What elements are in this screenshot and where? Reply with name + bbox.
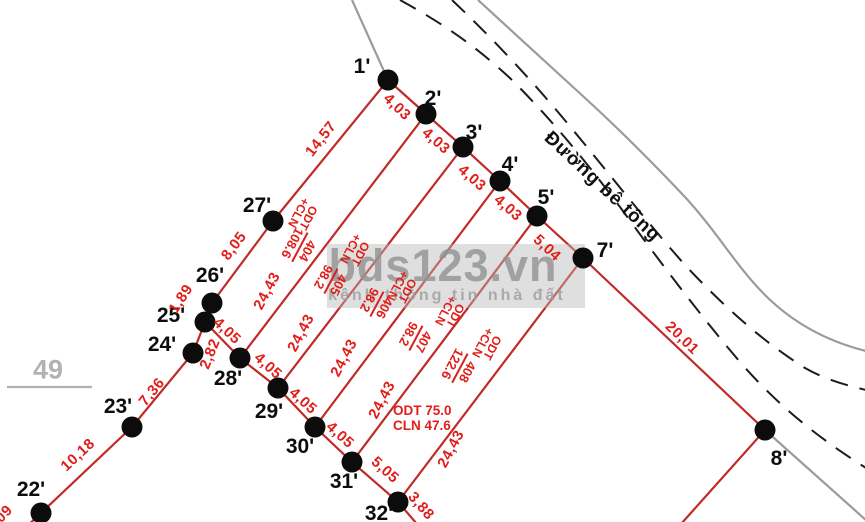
road-center-dashed-lines bbox=[400, 0, 865, 468]
point-label: 31' bbox=[330, 470, 358, 494]
point-label: 24' bbox=[148, 333, 176, 357]
point-label: 3' bbox=[466, 121, 483, 145]
point-label: 5' bbox=[538, 186, 555, 210]
point-label: 4' bbox=[502, 153, 519, 177]
landuse-note-line2: CLN 47.6 bbox=[393, 419, 452, 434]
road-dashed-line-1 bbox=[400, 0, 865, 468]
point-label: 32' bbox=[365, 502, 393, 522]
point-dot-28 bbox=[230, 348, 251, 369]
point-label: 26' bbox=[196, 264, 224, 288]
point-dot-8 bbox=[755, 420, 776, 441]
landuse-note: ODT 75.0 CLN 47.6 bbox=[393, 404, 452, 433]
point-dot-1 bbox=[378, 70, 399, 91]
point-dot-26 bbox=[202, 293, 223, 314]
point-label: 8' bbox=[771, 447, 788, 471]
cadastral-map: bds123.vn kênh thông tin nhà đất 1' 2' 3… bbox=[0, 0, 865, 522]
boundary-1-27 bbox=[273, 80, 388, 221]
point-label: 2' bbox=[425, 87, 442, 111]
point-label: 7' bbox=[597, 239, 614, 263]
adjacent-lot-label: 49 bbox=[33, 355, 63, 386]
point-label: 30' bbox=[286, 435, 314, 459]
divider-2-28 bbox=[240, 114, 426, 358]
road-inner-edge-bottom bbox=[765, 430, 865, 521]
point-dot-7 bbox=[573, 248, 594, 269]
point-label: 27' bbox=[243, 194, 271, 218]
landuse-note-line1: ODT 75.0 bbox=[393, 404, 452, 419]
point-label: 29' bbox=[255, 400, 283, 424]
point-dot-22 bbox=[31, 503, 52, 522]
point-label: 22' bbox=[17, 478, 45, 502]
point-dot-23 bbox=[122, 417, 143, 438]
boundary-8-spur bbox=[681, 430, 765, 522]
point-label: 23' bbox=[104, 395, 132, 419]
point-label: 28' bbox=[214, 367, 242, 391]
point-label: 1' bbox=[354, 55, 371, 79]
